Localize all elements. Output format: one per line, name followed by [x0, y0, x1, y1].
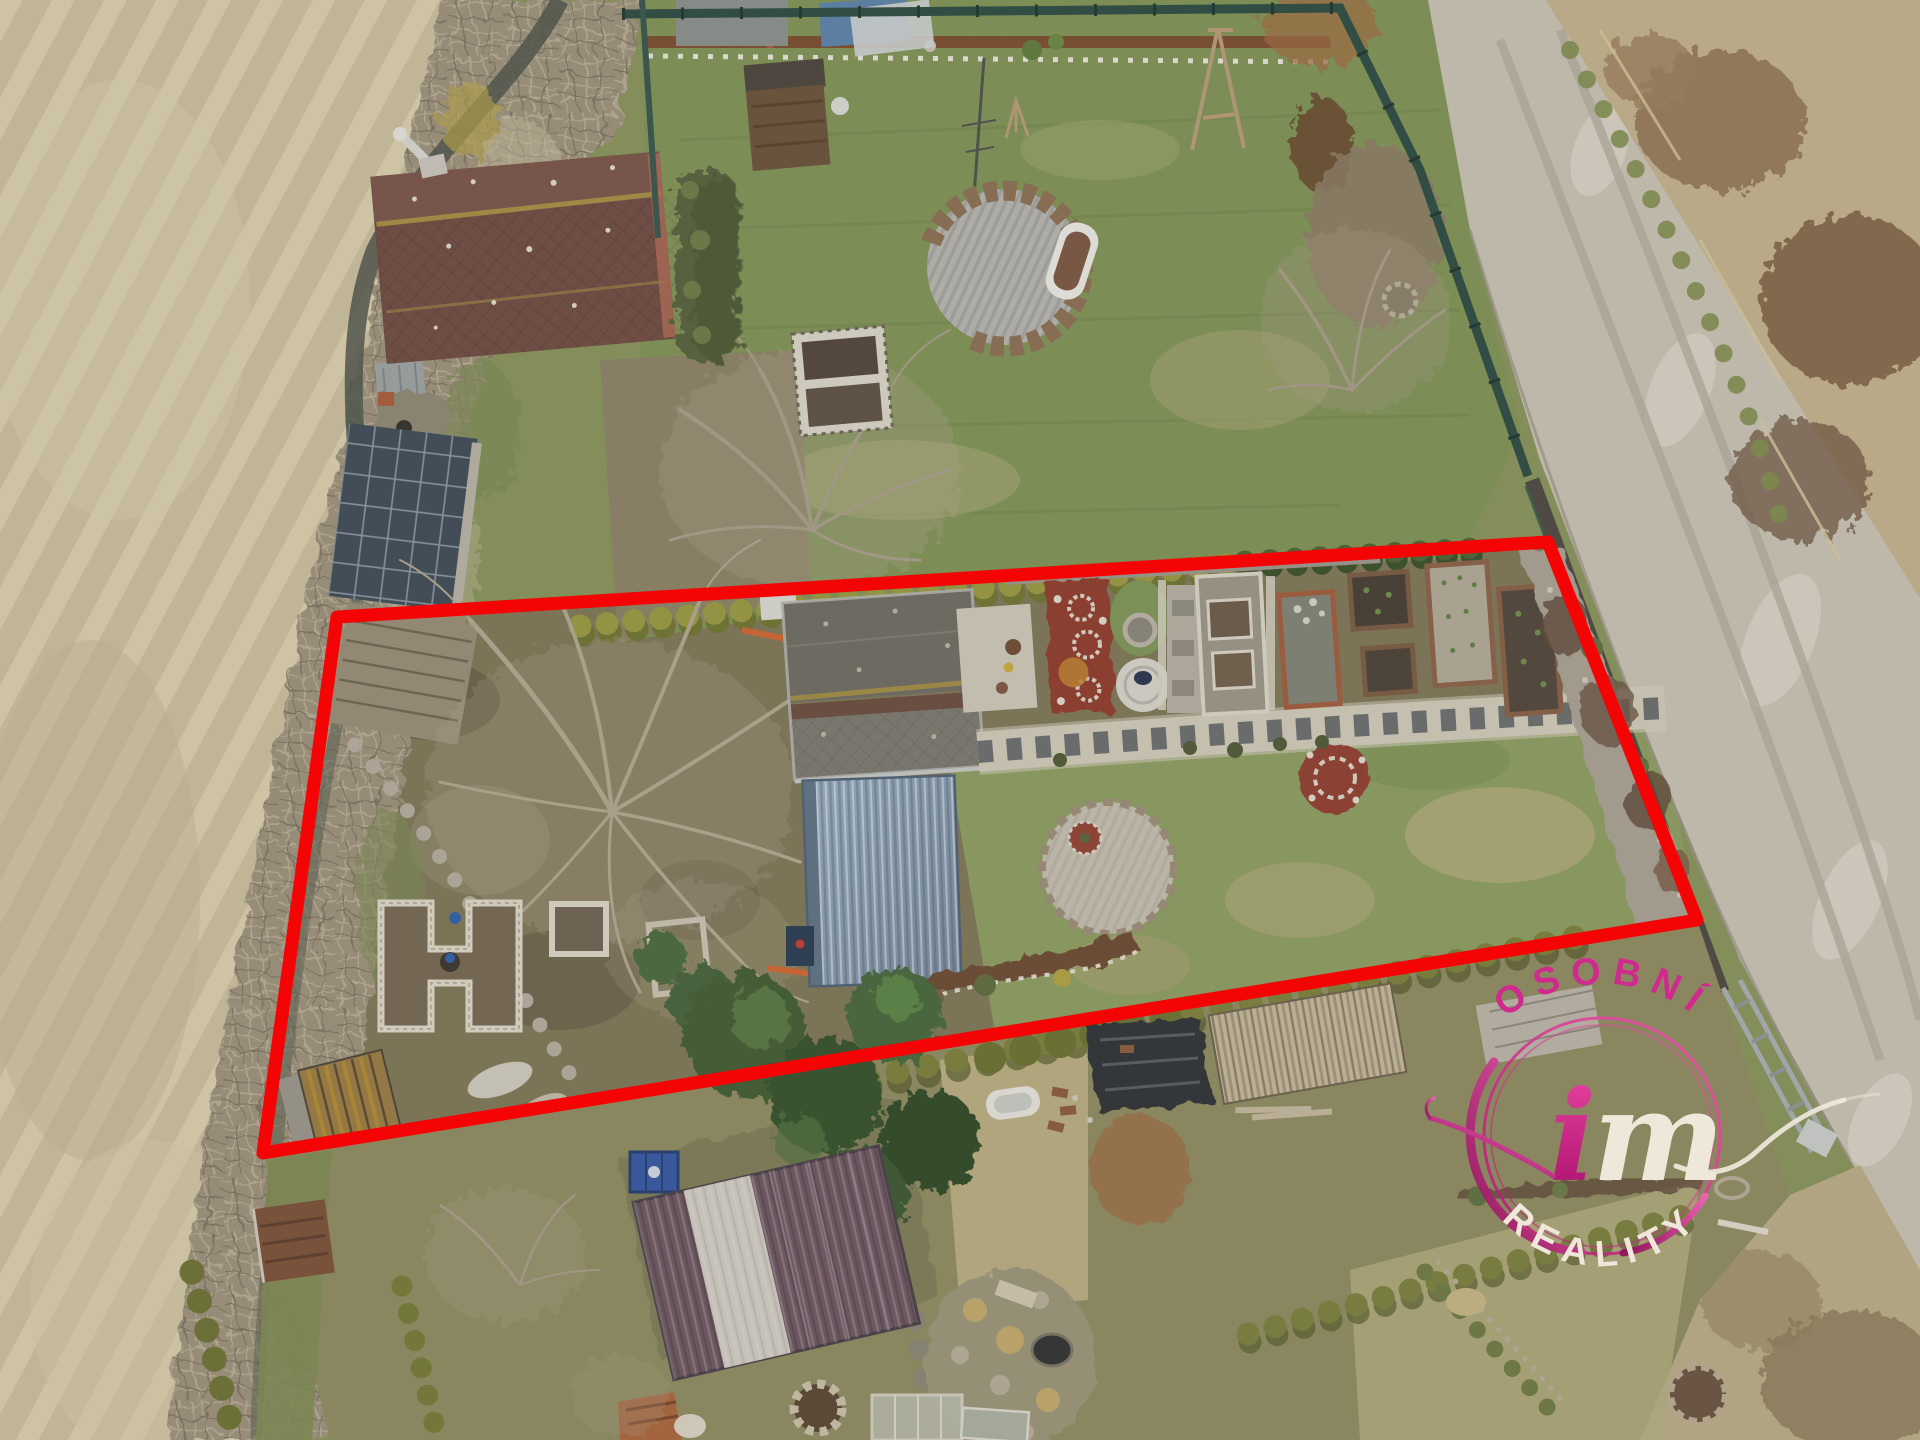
grain-overlay-light [0, 0, 1920, 1440]
aerial-photo: OSOBNÍ REALITY im [0, 0, 1920, 1440]
watermark-monogram: im [1549, 1064, 1725, 1210]
